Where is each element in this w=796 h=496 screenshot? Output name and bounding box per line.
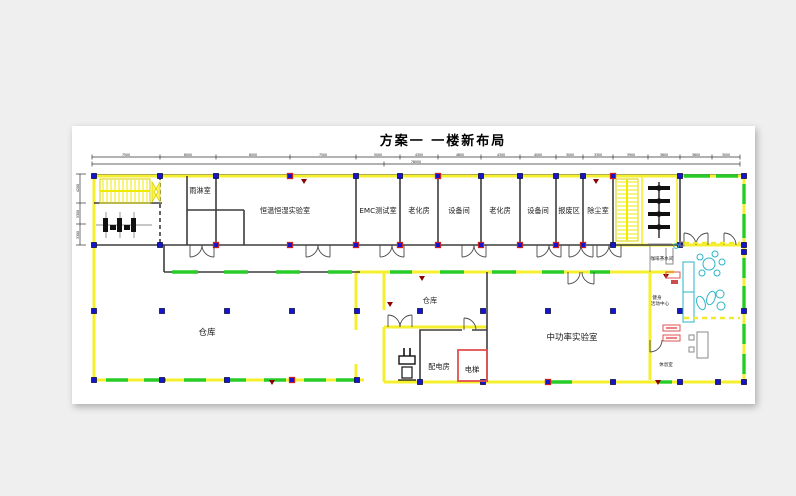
- room-label-warehouse-main: 仓库: [198, 327, 216, 338]
- room-labels: 雨淋室 恒温恒湿实验室 EMC测试室 老化房 设备间 老化房 设备间 报废区 除…: [189, 186, 674, 374]
- dim-label: 3600: [692, 153, 700, 157]
- dim-label: 4200: [76, 184, 80, 192]
- doors: [190, 233, 736, 352]
- dim-label: 3300: [76, 210, 80, 218]
- drawing-title: 方案一 一楼新布局: [380, 133, 507, 149]
- room-label-rain-shower: 雨淋室: [189, 186, 211, 195]
- transformer-symbol: [398, 348, 416, 380]
- room-label-coffee-pantry: 咖啡茶水间: [651, 255, 674, 262]
- yellow-door-leaves: [152, 182, 160, 202]
- dim-label: 3000: [722, 153, 730, 157]
- autodesk-watermark: Autodesk: [753, 184, 755, 246]
- top-dimension-line: 7500 6000 8000 7500 5000 4300 4800 4300 …: [92, 153, 740, 167]
- room-label-equipment-1: 设备间: [448, 206, 470, 215]
- room-label-fitness-1: 健身: [652, 294, 662, 301]
- dim-label: 4000: [534, 153, 542, 157]
- dim-label: 7500: [122, 153, 130, 157]
- room-label-fitness-2: 活动中心: [651, 300, 670, 307]
- dim-label: 8000: [249, 153, 257, 157]
- dim-label: 6000: [184, 153, 192, 157]
- lounge-furniture: [683, 251, 725, 322]
- room-label-aging-1: 老化房: [408, 206, 430, 215]
- room-label-climate-lab: 恒温恒湿实验室: [260, 206, 310, 215]
- dim-label: 3300: [594, 153, 602, 157]
- stairs-left: [100, 179, 160, 203]
- room-label-mid-power-lab: 中功率实验室: [546, 332, 598, 343]
- dim-label: 4300: [415, 153, 423, 157]
- room-label-elevator: 电梯: [465, 365, 479, 374]
- dim-label: 3300: [76, 231, 80, 239]
- toilet-fixtures-left: [103, 212, 136, 238]
- room-label-power-distribution: 配电房: [428, 362, 450, 371]
- dim-overall-label: 78000: [411, 160, 421, 164]
- viewer-background: 方案一 一楼新布局 7500 6000 8000 7500 5000 4300 …: [0, 0, 796, 496]
- left-dimension-line: 4200 3300 3300: [76, 174, 86, 245]
- room-label-emc-lab: EMC测试室: [359, 206, 396, 215]
- dim-label: 4300: [497, 153, 505, 157]
- drawing-page: 方案一 一楼新布局 7500 6000 8000 7500 5000 4300 …: [72, 126, 755, 404]
- room-label-warehouse-small: 仓库: [423, 296, 437, 305]
- room-label-equipment-2: 设备间: [527, 206, 549, 215]
- dim-label: 3600: [660, 153, 668, 157]
- room-label-lounge: 休息室: [659, 361, 673, 368]
- dim-label: 3900: [627, 153, 635, 157]
- dim-label: 3000: [566, 153, 574, 157]
- stairs-right: [616, 179, 638, 241]
- dim-label: 7500: [319, 153, 327, 157]
- floor-plan-canvas: 方案一 一楼新布局 7500 6000 8000 7500 5000 4300 …: [72, 126, 755, 404]
- room-label-scrap-area: 报废区: [558, 206, 580, 215]
- dim-label: 5000: [374, 153, 382, 157]
- dim-label: 4800: [456, 153, 464, 157]
- room-label-aging-2: 老化房: [489, 206, 511, 215]
- room-label-dust-room: 除尘室: [587, 206, 609, 215]
- lounge-desk: [689, 332, 708, 358]
